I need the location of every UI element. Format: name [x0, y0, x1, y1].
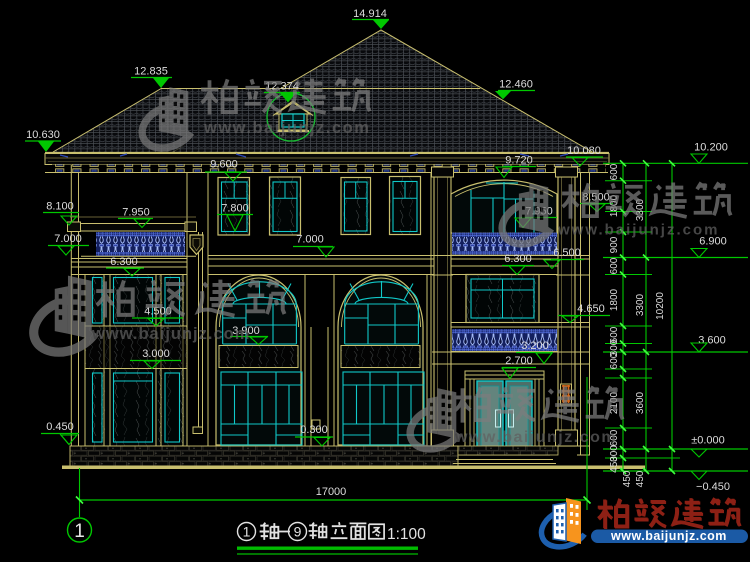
svg-text:10200: 10200 — [655, 292, 666, 320]
svg-text:450: 450 — [622, 470, 633, 487]
svg-text:8.100: 8.100 — [46, 201, 74, 213]
svg-text:www.baijunjz.com: www.baijunjz.com — [454, 429, 617, 446]
svg-text:www.baijunjz.com: www.baijunjz.com — [610, 529, 727, 543]
svg-text:0.300: 0.300 — [300, 424, 328, 436]
svg-text:10.080: 10.080 — [567, 145, 601, 157]
svg-text:9.720: 9.720 — [505, 155, 533, 167]
svg-text:600: 600 — [609, 257, 620, 274]
svg-text:±0.000: ±0.000 — [691, 435, 725, 447]
svg-text:1: 1 — [74, 521, 85, 542]
svg-text:3.200: 3.200 — [521, 340, 549, 352]
svg-text:9.600: 9.600 — [210, 159, 238, 171]
svg-text:6.300: 6.300 — [110, 256, 138, 268]
svg-text:9: 9 — [294, 524, 302, 540]
svg-text:12.835: 12.835 — [134, 66, 168, 78]
svg-text:6.300: 6.300 — [504, 253, 532, 265]
svg-text:www.baijunjz.com: www.baijunjz.com — [557, 222, 719, 239]
svg-text:−0.450: −0.450 — [696, 481, 730, 493]
svg-text:4.650: 4.650 — [577, 303, 605, 315]
svg-text:3.000: 3.000 — [142, 348, 170, 360]
svg-text:10.630: 10.630 — [26, 129, 60, 141]
svg-text:6.500: 6.500 — [553, 247, 581, 259]
svg-text:10.200: 10.200 — [694, 142, 728, 154]
svg-text:3.600: 3.600 — [698, 335, 726, 347]
svg-text:3600: 3600 — [635, 391, 646, 414]
svg-text:17000: 17000 — [316, 486, 347, 498]
svg-text:0.450: 0.450 — [46, 421, 74, 433]
svg-text:7.000: 7.000 — [296, 234, 324, 246]
svg-text:1800: 1800 — [609, 288, 620, 311]
svg-text:2.700: 2.700 — [505, 355, 533, 367]
svg-text:1: 1 — [243, 524, 251, 540]
svg-text:450: 450 — [609, 456, 620, 473]
svg-text:600: 600 — [609, 352, 620, 369]
svg-text:3300: 3300 — [635, 198, 646, 221]
svg-text:www.baijunjz.com: www.baijunjz.com — [91, 325, 250, 343]
svg-text:900: 900 — [609, 236, 620, 253]
svg-text:450: 450 — [635, 470, 646, 487]
svg-text:7.950: 7.950 — [122, 207, 150, 219]
svg-text:3300: 3300 — [635, 293, 646, 316]
svg-text:14.914: 14.914 — [353, 8, 387, 20]
svg-text:12.460: 12.460 — [499, 79, 533, 91]
svg-text:7.800: 7.800 — [221, 203, 249, 215]
svg-text:7.000: 7.000 — [54, 233, 82, 245]
svg-text:1:100: 1:100 — [387, 526, 426, 543]
svg-text:www.baijunjz.com: www.baijunjz.com — [203, 119, 370, 137]
svg-text:600: 600 — [609, 163, 620, 180]
